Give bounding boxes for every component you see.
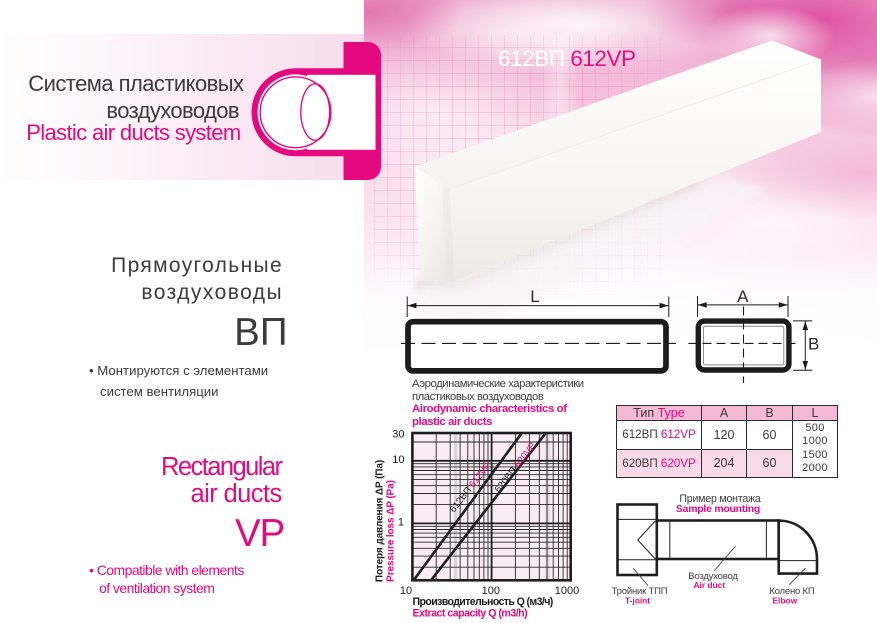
svg-text:A: A [737,287,749,306]
svg-text:L: L [530,287,539,306]
svg-text:T-joint: T-joint [625,596,650,606]
svg-text:B: B [808,335,819,354]
svg-text:Pressure loss ΔP (Pa): Pressure loss ΔP (Pa) [385,480,396,582]
svg-text:1000: 1000 [555,585,579,597]
svg-text:Elbow: Elbow [772,596,797,606]
svg-text:Потеря давления ΔP (Па): Потеря давления ΔP (Па) [374,460,385,582]
svg-text:Производительность Q (м3/ч): Производительность Q (м3/ч) [413,596,553,608]
svg-text:10: 10 [400,585,412,597]
svg-text:30: 30 [392,429,404,441]
svg-text:Extract capacity Q (m3/h): Extract capacity Q (m3/h) [413,608,528,620]
svg-text:1: 1 [398,517,404,529]
svg-text:Air duct: Air duct [693,580,725,590]
svg-text:10: 10 [392,454,404,466]
